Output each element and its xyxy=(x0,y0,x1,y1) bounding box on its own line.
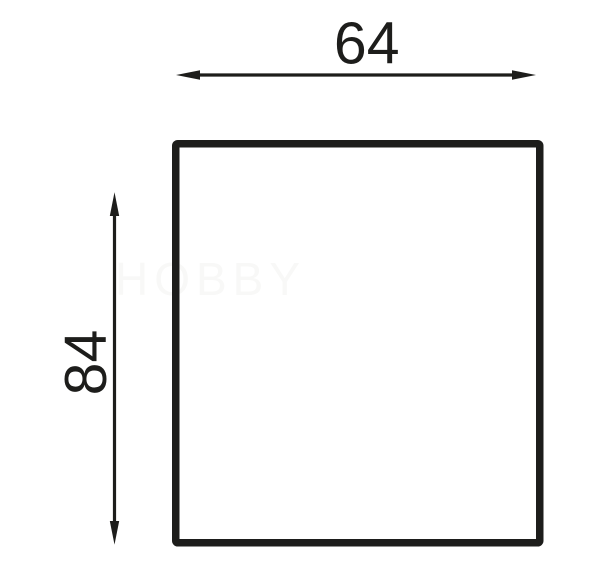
svg-text:64: 64 xyxy=(334,11,400,77)
svg-text:HOBBY: HOBBY xyxy=(115,253,306,305)
svg-text:84: 84 xyxy=(53,330,119,396)
